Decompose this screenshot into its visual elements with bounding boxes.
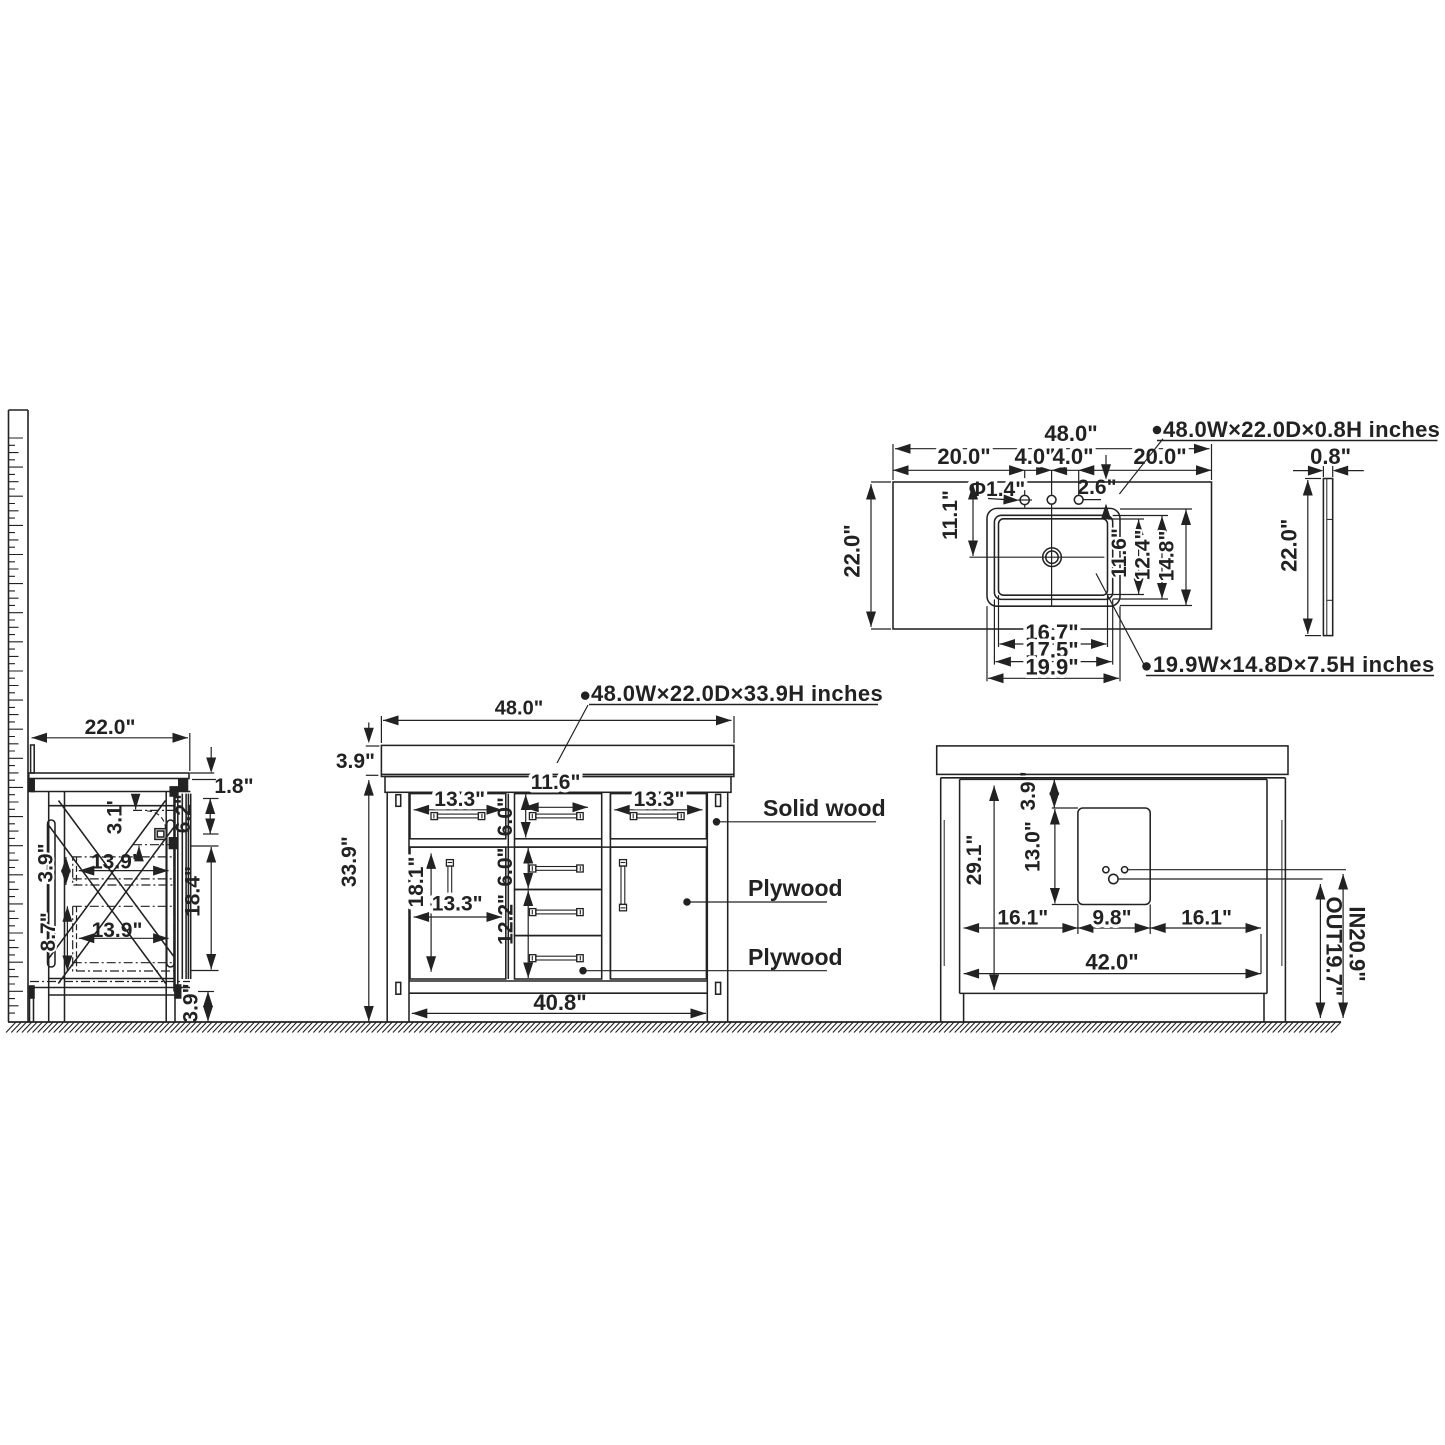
svg-text:12.2": 12.2": [495, 894, 518, 945]
svg-text:48.0W×22.0D×33.9H inches: 48.0W×22.0D×33.9H inches: [591, 681, 883, 706]
svg-text:13.3": 13.3": [434, 788, 485, 811]
svg-text:16.1": 16.1": [997, 907, 1048, 930]
svg-text:6.0": 6.0": [494, 848, 517, 887]
svg-text:18.4": 18.4": [181, 866, 204, 917]
svg-text:Plywood: Plywood: [748, 944, 843, 970]
svg-text:13.0": 13.0": [1021, 821, 1044, 872]
svg-text:6.0": 6.0": [494, 797, 517, 836]
svg-text:33.9": 33.9": [338, 836, 361, 887]
svg-text:0.8": 0.8": [1310, 444, 1351, 469]
svg-text:19.9": 19.9": [1025, 654, 1078, 679]
svg-text:48.0": 48.0": [495, 698, 543, 720]
svg-text:48.0W×22.0D×0.8H inches: 48.0W×22.0D×0.8H inches: [1163, 417, 1440, 442]
svg-text:13.9": 13.9": [91, 850, 142, 873]
svg-text:3.1': 3.1': [104, 800, 127, 834]
svg-text:Solid wood: Solid wood: [763, 795, 886, 821]
svg-text:48.0": 48.0": [1044, 421, 1097, 446]
svg-text:3.9": 3.9": [180, 983, 203, 1022]
svg-text:16.1": 16.1": [1181, 907, 1232, 930]
svg-text:4.0": 4.0": [1014, 444, 1055, 469]
svg-text:19.9W×14.8D×7.5H inches: 19.9W×14.8D×7.5H inches: [1153, 652, 1435, 677]
svg-text:20.0": 20.0": [937, 444, 990, 469]
svg-text:3.9": 3.9": [1017, 771, 1040, 810]
svg-text:OUT19.7": OUT19.7": [1322, 897, 1347, 997]
svg-text:13.3": 13.3": [432, 893, 483, 916]
svg-text:12.4": 12.4": [1132, 530, 1155, 581]
svg-text:1.8": 1.8": [214, 775, 253, 798]
svg-text:22.0": 22.0": [85, 716, 136, 739]
svg-text:13.3": 13.3": [634, 788, 685, 811]
svg-text:4.0": 4.0": [1052, 444, 1093, 469]
svg-text:IN20.9": IN20.9": [1345, 906, 1370, 981]
svg-text:42.0": 42.0": [1085, 950, 1138, 975]
svg-text:18.1": 18.1": [405, 857, 428, 908]
svg-text:22.0": 22.0": [1277, 519, 1302, 572]
svg-text:11.6": 11.6": [1108, 528, 1131, 578]
svg-text:11.6": 11.6": [531, 771, 581, 794]
svg-text:40.8": 40.8": [533, 990, 586, 1015]
svg-text:22.0": 22.0": [840, 524, 865, 577]
svg-text:13.9": 13.9": [92, 919, 143, 942]
svg-text:3.9": 3.9": [336, 750, 375, 773]
svg-text:14.8": 14.8": [1156, 531, 1179, 582]
svg-text:9.8": 9.8": [1092, 907, 1131, 930]
svg-text:8.7": 8.7": [37, 912, 60, 951]
svg-text:3.9": 3.9": [35, 843, 58, 882]
svg-text:6.2": 6.2": [172, 794, 195, 833]
svg-text:11.1": 11.1": [939, 490, 962, 540]
svg-text:Plywood: Plywood: [748, 875, 843, 901]
svg-text:29.1": 29.1": [963, 835, 986, 886]
svg-text:2.6": 2.6": [1077, 476, 1116, 499]
